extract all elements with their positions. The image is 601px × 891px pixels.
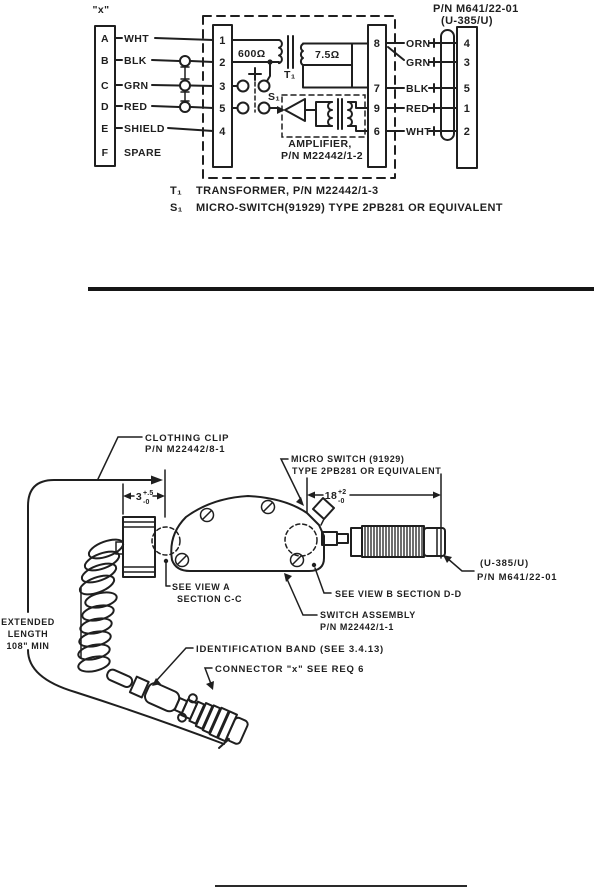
amplifier: AMPLIFIER, P/N M22442/1-2 (270, 95, 369, 162)
plug-title-designator: (U-385/U) (441, 15, 493, 27)
plug-wire-label: GRN (406, 57, 431, 69)
connector-x-title: "x" (93, 4, 110, 16)
clothing-clip-label-line1: CLOTHING CLIP (145, 433, 229, 444)
identification-band-label: IDENTIFICATION BAND (SEE 3.4.13) (196, 644, 384, 655)
module-pin: 6 (374, 126, 381, 138)
transformer-t1: 600Ω 7.5Ω T₁ (232, 36, 368, 88)
dim-clip: 3 +.5 -0 (123, 484, 165, 514)
amplifier-part-number: P/N M22442/1-2 (281, 150, 363, 162)
module-pin: 5 (219, 103, 226, 115)
pin-letter: A (101, 33, 109, 45)
callout-switch-assembly: SWITCH ASSEMBLY P/N M22442/1-1 (284, 573, 416, 632)
connector-x-label: CONNECTOR "x" SEE REQ 6 (215, 664, 364, 675)
wire-label: WHT (124, 33, 149, 45)
micro-switch-label-line2: TYPE 2PB281 OR EQUIVALENT (292, 466, 441, 476)
footer-rule (215, 885, 467, 887)
schematic-notes: T₁ TRANSFORMER, P/N M22442/1-3 S₁ MICRO-… (170, 185, 503, 214)
callout-plug: (U-385/U) P/N M641/22-01 (443, 555, 557, 583)
plug-pin: 5 (464, 83, 471, 95)
note-transformer-text: TRANSFORMER, P/N M22442/1-3 (196, 185, 379, 197)
extended-length-line3: 108" MIN (6, 641, 49, 651)
switch-s1: S₁ (232, 62, 280, 114)
module-pin: 9 (374, 103, 381, 115)
plug-dim-value: 18 (325, 490, 337, 502)
extended-length-line2: LENGTH (8, 629, 49, 639)
plug-pin: 1 (464, 103, 471, 115)
plug-label-line1: (U-385/U) (480, 558, 529, 569)
callout-micro-switch: MICRO SWITCH (91929) TYPE 2PB281 OR EQUI… (281, 454, 441, 506)
module-pin: 1 (219, 35, 226, 47)
assembly-drawing: EXTENDED LENGTH 108" MIN (0, 430, 601, 790)
document-page: "x" A B C D E F WHT BLK GRN RED SHIELD S… (0, 0, 601, 891)
clothing-clip-label-line2: P/N M22442/8-1 (145, 444, 225, 455)
pin-letter: F (102, 147, 109, 159)
callout-view-b: SEE VIEW B SECTION D-D (312, 563, 462, 599)
plug-label-line2: P/N M641/22-01 (477, 572, 557, 583)
plug-dim-plus: +2 (338, 489, 346, 496)
wiring-schematic: "x" A B C D E F WHT BLK GRN RED SHIELD S… (0, 0, 601, 232)
plug-wire-label: BLK (406, 83, 429, 95)
module-pin: 4 (219, 126, 226, 138)
micro-switch-label-line1: MICRO SWITCH (91929) (291, 454, 405, 464)
clip-dim-plus: +.5 (143, 490, 154, 497)
section-c-c-circle (152, 527, 180, 555)
cable-lacing (180, 56, 190, 112)
module-pin: 2 (219, 57, 226, 69)
wire-label: GRN (124, 80, 149, 92)
secondary-impedance-label: 7.5Ω (315, 49, 340, 61)
module-pin: 7 (374, 83, 381, 95)
section-divider (88, 287, 594, 291)
note-switch-text: MICRO-SWITCH(91929) TYPE 2PB281 OR EQUIV… (196, 202, 503, 214)
section-d-d-circle (285, 524, 317, 556)
clip-dim-value: 3 (136, 491, 142, 503)
wire-label: RED (124, 101, 147, 113)
plug-pin: 4 (464, 38, 471, 50)
plug-wire-label: ORN (406, 38, 431, 50)
plug-wire-label: RED (406, 103, 429, 115)
plug-pin: 3 (464, 57, 471, 69)
plug-dim-minus: -0 (338, 498, 345, 505)
wire-label: SHIELD (124, 123, 165, 135)
clip-dim-minus: -0 (143, 499, 150, 506)
plug-wires: ORN GRN BLK RED WHT (386, 38, 457, 138)
coil-cord (77, 536, 126, 674)
plug-title-part-number: P/N M641/22-01 (433, 3, 519, 15)
dome-body (152, 496, 348, 571)
pin-letter: E (101, 123, 108, 135)
module-pin: 3 (219, 81, 226, 93)
note-switch-ref: S₁ (170, 202, 183, 214)
plug-connector: P/N M641/22-01 (U-385/U) 4 3 5 1 2 (433, 3, 519, 168)
view-a-label-line1: SEE VIEW A (172, 582, 230, 592)
wire-label: SPARE (124, 147, 161, 159)
extended-length-line1: EXTENDED (1, 617, 55, 627)
pin-letter: B (101, 55, 109, 67)
pin-letter: D (101, 101, 109, 113)
module-pin-strip-right: 8 7 9 6 (368, 25, 386, 167)
plug-barrel (351, 526, 445, 557)
view-a-label-line2: SECTION C-C (177, 594, 242, 604)
plug-pin: 2 (464, 126, 471, 138)
wire-label: BLK (124, 55, 147, 67)
callout-clothing-clip: CLOTHING CLIP P/N M22442/8-1 (98, 433, 229, 479)
module-pin: 8 (374, 38, 381, 50)
switch-assembly-label-line1: SWITCH ASSEMBLY (320, 610, 416, 620)
callout-connector-x: CONNECTOR "x" SEE REQ 6 (205, 664, 364, 690)
switch-assembly-label-line2: P/N M22442/1-1 (320, 622, 394, 632)
cable-capsule (441, 30, 454, 140)
primary-impedance-label: 600Ω (238, 48, 266, 60)
module-pin-strip-left: 1 2 3 5 4 (213, 25, 232, 167)
amplifier-label: AMPLIFIER, (288, 138, 352, 150)
transformer-ref-label: T₁ (284, 69, 296, 81)
note-transformer-ref: T₁ (170, 185, 182, 197)
plug-wire-label: WHT (406, 126, 431, 138)
view-b-label: SEE VIEW B SECTION D-D (335, 589, 462, 599)
pin-letter: C (101, 80, 109, 92)
switch-ref-label: S₁ (268, 91, 280, 103)
